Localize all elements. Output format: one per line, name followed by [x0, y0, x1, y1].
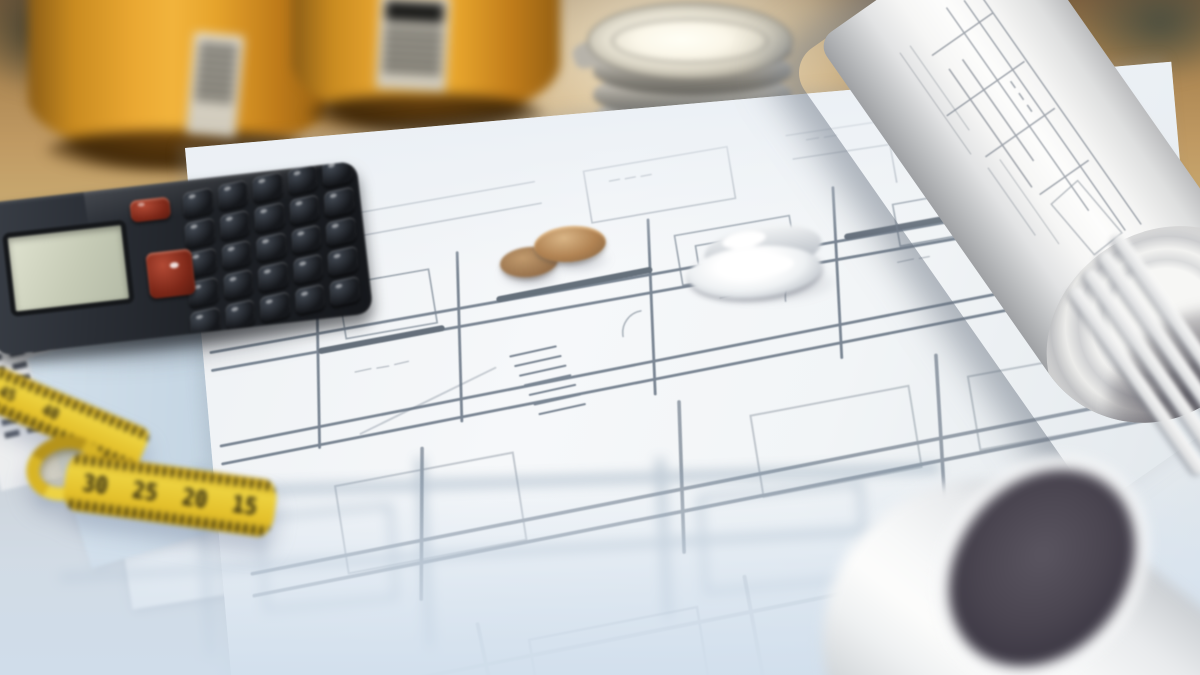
- barcode: [195, 43, 238, 104]
- calculator-key: [223, 269, 254, 300]
- calculator-key: [260, 291, 291, 322]
- label-print-block: [385, 1, 444, 24]
- calculator-key: [330, 276, 361, 307]
- calculator-key: [182, 187, 213, 218]
- calculator-keypad: [182, 161, 360, 338]
- calculator-key: [252, 172, 283, 203]
- container-label: [376, 0, 451, 92]
- tin-lid-reflection: [587, 2, 793, 80]
- barcode: [382, 27, 442, 78]
- calculator-key: [256, 231, 287, 262]
- calculator-key: [287, 164, 318, 195]
- calculator-key: [184, 217, 215, 248]
- tape-number: 15: [230, 491, 259, 521]
- silver-coins: [688, 226, 833, 298]
- calculator-key: [293, 254, 324, 285]
- orange-container-right: [292, 0, 560, 136]
- tape-number: 40: [39, 401, 61, 424]
- calculator-key: [295, 284, 326, 315]
- calculator-key: [322, 161, 353, 187]
- calculator-key: [289, 194, 320, 225]
- measuring-tape: 45 40 30 25 20 15: [0, 378, 320, 618]
- calculator-key: [225, 299, 256, 330]
- tape-number: 30: [81, 470, 110, 500]
- calculator-key: [291, 224, 322, 255]
- tape-numbers: 30 25 20 15: [61, 452, 279, 539]
- calculator-lcd-display: [2, 219, 135, 316]
- tape-front-strip: 30 25 20 15: [61, 452, 279, 539]
- calculator-key: [217, 179, 248, 210]
- calculator-key: [221, 239, 252, 270]
- calculator-key: [324, 186, 355, 217]
- calculator-red-key-small: [129, 196, 171, 222]
- tape-number: 45: [0, 383, 19, 406]
- calculator-key: [328, 246, 359, 277]
- calculator-red-key-large: [145, 248, 196, 299]
- tape-number: 20: [181, 484, 210, 514]
- desk-scene-photo: 45 40 30 25 20 15: [0, 0, 1200, 675]
- tape-number: 25: [131, 477, 160, 507]
- calculator-key: [254, 202, 285, 233]
- calculator-key: [219, 209, 250, 240]
- container-label: [186, 32, 245, 138]
- calculator-key: [258, 261, 289, 292]
- calculator-key: [326, 216, 357, 247]
